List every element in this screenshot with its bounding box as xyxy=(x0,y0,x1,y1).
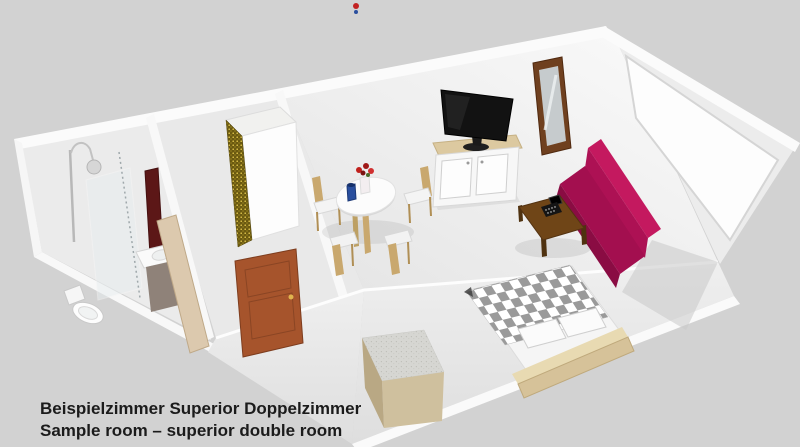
blue-cup-top xyxy=(347,183,355,187)
entrance-door xyxy=(235,249,303,357)
floorplan-render: Beispielzimmer Superior Doppelzimmer Sam… xyxy=(0,0,800,447)
wardrobe-side xyxy=(242,122,299,240)
wardrobe xyxy=(226,107,299,247)
floorplan-canvas xyxy=(0,0,800,447)
knob-left xyxy=(467,162,470,165)
sideboard-door-right xyxy=(476,154,508,195)
top-marker xyxy=(353,3,359,14)
knob-right xyxy=(481,161,484,164)
ottoman-front xyxy=(382,372,444,428)
coffee-table-shadow xyxy=(515,238,591,258)
flower-vase xyxy=(360,176,370,194)
caption: Beispielzimmer Superior Doppelzimmer Sam… xyxy=(40,398,361,442)
tv-sideboard xyxy=(433,90,522,210)
caption-line-english: Sample room – superior double room xyxy=(40,420,361,442)
door-handle xyxy=(289,295,294,300)
caption-line-german: Beispielzimmer Superior Doppelzimmer xyxy=(40,398,361,420)
shower-head xyxy=(87,160,101,174)
